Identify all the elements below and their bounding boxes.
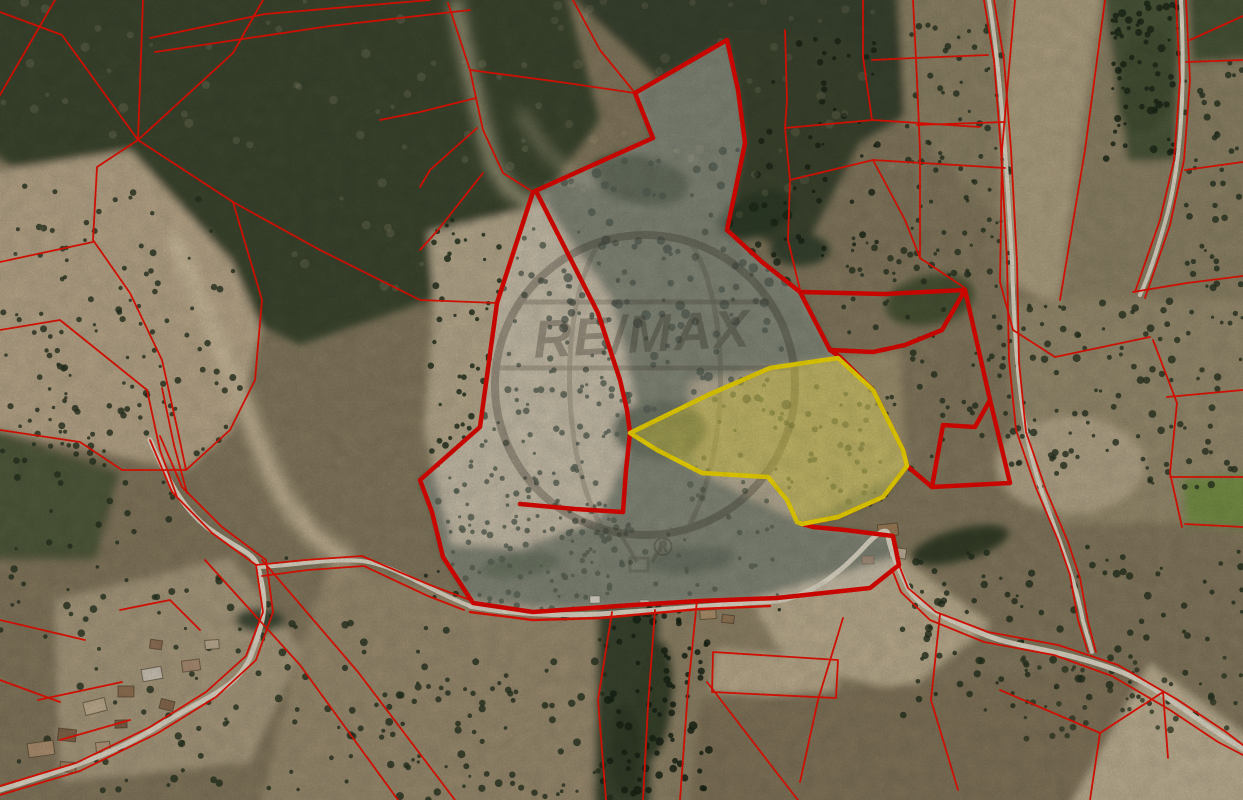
satellite-map[interactable]: RE/MAX ® [0, 0, 1243, 800]
photo-mottle [0, 0, 1243, 800]
map-canvas[interactable]: RE/MAX ® [0, 0, 1243, 800]
